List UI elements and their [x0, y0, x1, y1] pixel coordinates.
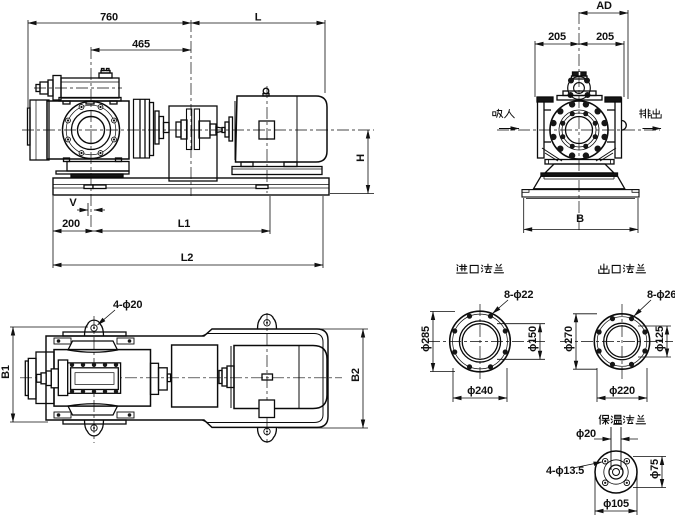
svg-text:465: 465	[132, 39, 150, 51]
svg-text:ϕ125: ϕ125	[654, 326, 666, 352]
svg-text:L1: L1	[178, 218, 191, 230]
svg-text:4-ϕ20: 4-ϕ20	[113, 299, 142, 311]
svg-text:205: 205	[548, 31, 566, 43]
svg-text:B: B	[576, 213, 584, 225]
svg-text:ϕ270: ϕ270	[563, 326, 575, 352]
svg-text:AD: AD	[596, 0, 612, 12]
svg-text:B2: B2	[350, 368, 362, 382]
svg-text:ϕ285: ϕ285	[420, 326, 432, 352]
svg-text:760: 760	[100, 12, 118, 24]
svg-text:ϕ20: ϕ20	[576, 428, 596, 440]
svg-text:200: 200	[62, 218, 80, 230]
svg-text:205: 205	[596, 31, 614, 43]
svg-text:B1: B1	[0, 365, 12, 379]
svg-text:ϕ240: ϕ240	[467, 385, 493, 397]
svg-text:L2: L2	[181, 252, 194, 264]
svg-text:L: L	[255, 12, 262, 24]
svg-text:8-ϕ26: 8-ϕ26	[647, 289, 675, 301]
svg-text:V: V	[69, 197, 77, 209]
svg-text:ϕ105: ϕ105	[603, 498, 629, 510]
svg-text:H: H	[355, 154, 367, 162]
svg-text:ϕ75: ϕ75	[649, 459, 661, 479]
svg-text:ϕ150: ϕ150	[527, 326, 539, 352]
svg-text:ϕ220: ϕ220	[609, 385, 635, 397]
svg-text:8-ϕ22: 8-ϕ22	[504, 289, 533, 301]
